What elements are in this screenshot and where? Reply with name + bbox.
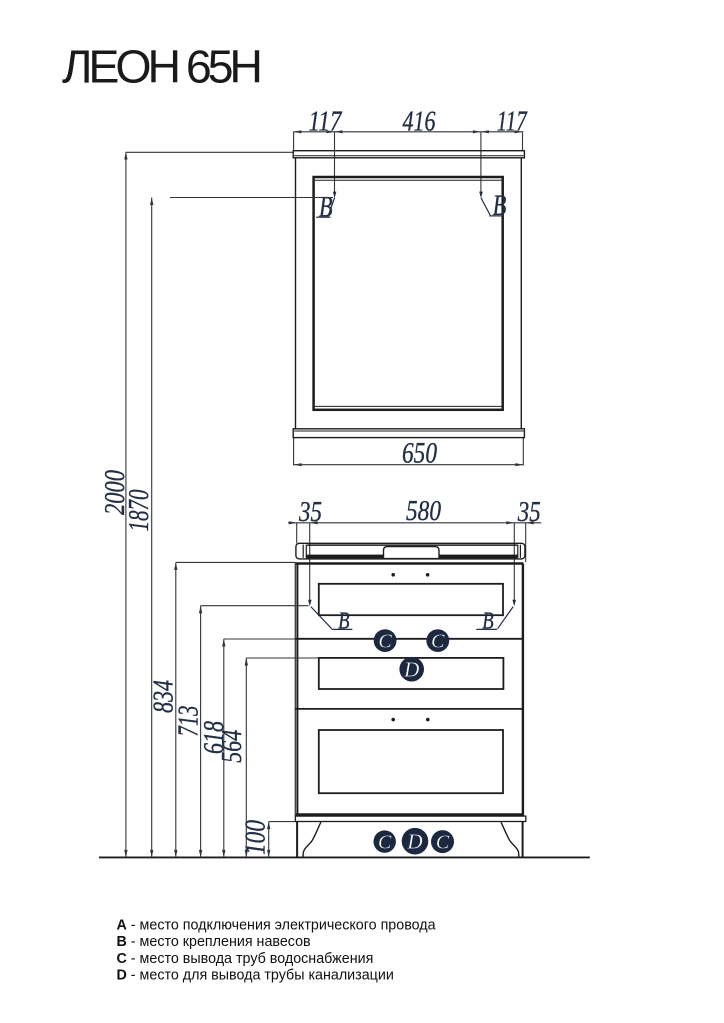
svg-text:117: 117 [309, 105, 343, 137]
svg-text:B: B [493, 188, 507, 222]
svg-text:564: 564 [216, 730, 248, 763]
svg-text:B: B [319, 189, 333, 223]
svg-text:A - место подключения электрич: A - место подключения электрического про… [117, 917, 436, 933]
svg-text:416: 416 [403, 105, 436, 137]
svg-text:B: B [482, 607, 493, 634]
svg-text:ЛЕОН 65Н: ЛЕОН 65Н [62, 41, 263, 93]
svg-text:C: C [431, 630, 445, 652]
svg-text:C: C [378, 630, 392, 652]
svg-text:D: D [403, 657, 419, 681]
svg-text:D: D [406, 830, 422, 854]
svg-text:100: 100 [240, 820, 272, 855]
svg-text:B - место крепления навесов: B - место крепления навесов [117, 934, 311, 950]
svg-text:35: 35 [298, 496, 322, 528]
svg-text:1870: 1870 [123, 489, 155, 531]
svg-text:650: 650 [402, 437, 437, 470]
svg-text:C - место вывода труб водоснаб: C - место вывода труб водоснабжения [117, 951, 374, 967]
svg-text:B: B [338, 607, 349, 634]
svg-text:C: C [378, 831, 392, 853]
svg-text:C: C [436, 831, 450, 853]
svg-text:D - место для вывода трубы кан: D - место для вывода трубы канализации [117, 968, 394, 984]
svg-text:580: 580 [406, 495, 441, 527]
svg-text:35: 35 [517, 496, 541, 528]
svg-text:117: 117 [497, 105, 528, 137]
